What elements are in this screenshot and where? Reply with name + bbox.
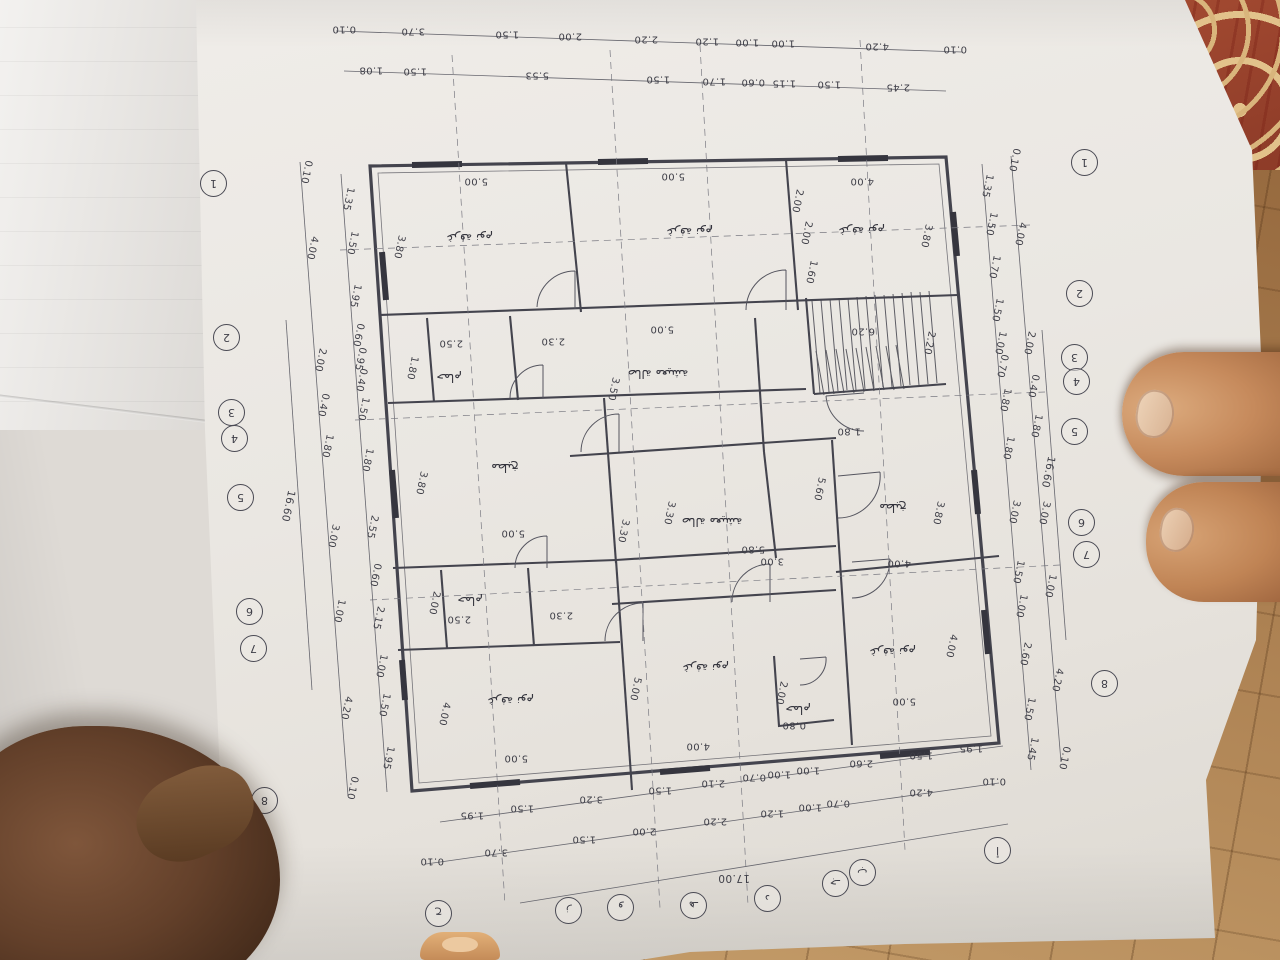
grid-bubble-label: هـ xyxy=(689,899,698,912)
chain-dimension-label: 1.35 xyxy=(341,186,357,212)
chain-dimension-label: 1.50 xyxy=(355,396,371,422)
chain-dimension-label: 1.20 xyxy=(760,807,784,818)
interior-dimension-label: 3.30 xyxy=(661,500,677,526)
grid-bubble-bottom: د xyxy=(754,885,781,912)
chain-dimension-label: 1.50 xyxy=(989,297,1005,323)
interior-dimension-label: 4.00 xyxy=(436,701,452,727)
chain-dimension-label: 5.53 xyxy=(525,69,549,80)
chain-dimension-label: 0.40 xyxy=(353,367,369,393)
room-name-label: مطبخ xyxy=(491,461,519,475)
grid-bubble-bottom: ب xyxy=(849,859,876,886)
interior-dimension-label: 4.00 xyxy=(887,558,911,569)
interior-dimension-label: 2.20 xyxy=(921,330,937,356)
chain-dimension-label: 0.70 xyxy=(742,772,766,783)
grid-bubble-bottom: جـ xyxy=(822,870,849,897)
chain-dimension-label: 0.10 xyxy=(1006,147,1022,173)
grid-bubble-right: 5 xyxy=(1061,418,1088,445)
interior-dimension-label: 3.80 xyxy=(413,470,429,496)
chain-dimension-label: 1.95 xyxy=(380,745,396,771)
grid-bubble-label: ب xyxy=(857,866,867,879)
chain-dimension-label: 0.10 xyxy=(943,43,967,54)
chain-dimension-label: 1.00 xyxy=(1042,573,1058,599)
grid-bubble-label: ح xyxy=(435,907,442,920)
chain-dimension-label: 1.00 xyxy=(735,37,759,48)
chain-dimension-label: 1.95 xyxy=(347,283,363,309)
grid-bubble-label: 4 xyxy=(231,432,238,445)
room-name-label: حمام xyxy=(785,703,810,717)
chain-dimension-label: 4.20 xyxy=(338,695,354,721)
interior-dimension-label: 1.60 xyxy=(803,259,819,285)
chain-dimension-label: 4.20 xyxy=(865,41,889,52)
grid-bubble-left: 4 xyxy=(221,425,248,452)
grid-bubble-bottom: هـ xyxy=(680,892,707,919)
chain-dimension-label: 1.50 xyxy=(344,230,360,256)
grid-bubble-label: 5 xyxy=(237,491,244,504)
chain-dimension-label: 1.00 xyxy=(798,802,822,813)
grid-bubble-label: 1 xyxy=(1081,156,1088,169)
chain-dimension-label: 2.15 xyxy=(370,605,386,631)
grid-bubble-right: 4 xyxy=(1063,368,1090,395)
chain-dimension-label: 2.10 xyxy=(701,777,725,788)
interior-dimension-label: 5.00 xyxy=(892,696,916,707)
interior-dimension-label: 5.00 xyxy=(661,171,685,182)
room-name-label: غرفة نوم xyxy=(683,661,729,675)
chain-dimension-label: 1.00 xyxy=(796,764,820,775)
interior-dimension-label: 1.80 xyxy=(404,355,420,381)
chain-dimension-label: 2.00 xyxy=(1021,330,1037,356)
chain-dimension-label: 3.70 xyxy=(401,26,425,37)
total-dimension-label: 17.00 xyxy=(718,872,750,884)
chain-dimension-label: 2.00 xyxy=(632,825,656,836)
chain-dimension-label: 1.50 xyxy=(495,29,519,40)
chain-dimension-label: 1.20 xyxy=(695,35,719,46)
grid-bubble-label: 8 xyxy=(1101,677,1108,690)
grid-bubble-label: 8 xyxy=(261,794,268,807)
room-name-label: مطبخ xyxy=(879,501,907,515)
chain-dimension-label: 1.50 xyxy=(1021,696,1037,722)
chain-dimension-label: 1.50 xyxy=(510,803,534,814)
grid-bubble-right: 2 xyxy=(1066,280,1093,307)
fingertip-bottom-edge xyxy=(420,932,500,960)
interior-dimension-label: 2.50 xyxy=(439,338,463,349)
grid-bubble-label: 2 xyxy=(1076,287,1083,300)
grid-bubble-label: 3 xyxy=(1071,351,1078,364)
grid-bubble-right: 3 xyxy=(1061,344,1088,371)
chain-dimension-label: 2.60 xyxy=(849,757,873,768)
chain-dimension-label: 1.80 xyxy=(1028,414,1044,440)
interior-dimension-label: 2.30 xyxy=(549,610,573,621)
holding-finger-upper xyxy=(1122,352,1280,476)
chain-dimension-label: 0.10 xyxy=(298,159,314,185)
interior-dimension-label: 3.50 xyxy=(605,376,621,402)
grid-bubble-label: و xyxy=(618,901,623,914)
grid-bubble-label: 3 xyxy=(228,406,235,419)
interior-dimension-label: 3.80 xyxy=(391,234,407,260)
grid-bubble-label: ز xyxy=(566,904,571,917)
interior-dimension-label: 0.80 xyxy=(782,720,806,731)
chain-dimension-label: 1.95 xyxy=(959,742,983,753)
chain-dimension-label: 1.50 xyxy=(572,834,596,845)
grid-bubble-right: 7 xyxy=(1073,541,1100,568)
interior-dimension-label: 5.00 xyxy=(501,528,525,539)
chain-dimension-label: 1.70 xyxy=(986,254,1002,280)
grid-bubble-left: 5 xyxy=(227,484,254,511)
interior-dimension-label: 3.30 xyxy=(615,518,631,544)
chain-dimension-label: 3.00 xyxy=(1036,501,1052,527)
chain-dimension-label: 3.00 xyxy=(1006,499,1022,525)
fingernail-lower xyxy=(1156,505,1197,554)
chain-dimension-label: 0.60 xyxy=(741,76,765,87)
chain-dimension-label: 0.60 xyxy=(350,322,366,348)
holding-finger-lower xyxy=(1146,482,1280,602)
chain-dimension-label: 0.10 xyxy=(332,24,356,35)
chain-dimension-label: 3.20 xyxy=(579,794,603,805)
interior-dimension-label: 4.00 xyxy=(686,741,710,752)
room-name-label: صالة معيشة xyxy=(682,515,743,529)
chain-dimension-label: 2.20 xyxy=(634,33,658,44)
chain-dimension-label: 1.50 xyxy=(817,79,841,90)
grid-bubble-label: 1 xyxy=(210,177,217,190)
interior-dimension-label: 5.80 xyxy=(741,544,765,555)
room-name-label: غرفة نوم xyxy=(447,231,493,245)
chain-dimension-label: 2.20 xyxy=(703,815,727,826)
chain-dimension-label: 1.35 xyxy=(980,173,996,199)
chain-dimension-label: 1.50 xyxy=(1010,560,1026,586)
interior-dimension-label: 5.60 xyxy=(811,476,827,502)
interior-dimension-label: 2.50 xyxy=(447,614,471,625)
grid-bubble-right: 8 xyxy=(1091,670,1118,697)
total-dimension-label: 16.60 xyxy=(279,489,297,523)
interior-dimension-label: 2.00 xyxy=(789,188,805,214)
chain-dimension-label: 1.50 xyxy=(983,211,999,237)
chain-dimension-label: 3.00 xyxy=(325,523,341,549)
grid-bubble-label: 7 xyxy=(1083,548,1090,561)
interior-dimension-label: 5.00 xyxy=(464,176,488,187)
grid-bubble-right: 6 xyxy=(1068,509,1095,536)
interior-dimension-label: 5.00 xyxy=(504,753,528,764)
grid-bubble-left: 1 xyxy=(200,170,227,197)
chain-dimension-label: 1.00 xyxy=(771,38,795,49)
chain-dimension-label: 3.70 xyxy=(484,846,508,857)
chain-dimension-label: 1.80 xyxy=(997,387,1013,413)
grid-bubble-label: 5 xyxy=(1071,425,1078,438)
grid-bubble-bottom: و xyxy=(607,894,634,921)
interior-dimension-label: 4.00 xyxy=(943,633,959,659)
interior-dimension-label: 4.00 xyxy=(850,176,874,187)
chain-dimension-label: 1.80 xyxy=(359,447,375,473)
chain-dimension-label: 1.80 xyxy=(1001,435,1017,461)
chain-dimension-label: 0.40 xyxy=(316,392,332,418)
grid-bubble-left: 3 xyxy=(218,399,245,426)
chain-dimension-label: 0.10 xyxy=(420,855,444,866)
chain-dimension-label: 1.45 xyxy=(1025,736,1041,762)
room-name-label: صالة معيشة xyxy=(628,367,689,381)
grid-bubble-label: 7 xyxy=(250,642,257,655)
chain-dimension-label: 4.00 xyxy=(1012,221,1028,247)
chain-dimension-label: 1.00 xyxy=(1013,593,1029,619)
chain-dimension-label: 4.20 xyxy=(1049,667,1065,693)
chain-dimension-label: 1.50 xyxy=(646,73,670,84)
grid-bubble-label: أ xyxy=(996,844,999,857)
room-name-label: غرفة نوم xyxy=(870,645,916,659)
interior-dimension-label: 6.20 xyxy=(851,326,875,337)
chain-dimension-label: 1.00 xyxy=(331,598,347,624)
grid-bubble-left: 7 xyxy=(240,635,267,662)
room-name-label: غرفة نوم xyxy=(667,225,713,239)
room-name-label: غرفة نوم xyxy=(488,694,534,708)
total-dimension-label: 16.60 xyxy=(1039,455,1057,489)
room-name-label: حمام xyxy=(436,371,461,385)
chain-dimension-label: 2.45 xyxy=(886,81,910,92)
room-name-label: حمام xyxy=(457,594,482,608)
chain-dimension-label: 0.10 xyxy=(1056,745,1072,771)
grid-bubble-left: 6 xyxy=(236,598,263,625)
chain-dimension-label: 0.10 xyxy=(344,775,360,801)
grid-bubble-bottom: ز xyxy=(555,897,582,924)
chain-dimension-label: 1.00 xyxy=(767,768,791,779)
chain-dimension-label: 0.40 xyxy=(1025,374,1041,400)
chain-dimension-label: 4.20 xyxy=(909,786,933,797)
interior-dimension-label: 1.80 xyxy=(837,426,861,437)
grid-bubble-bottom: ح xyxy=(425,900,452,927)
chain-dimension-label: 1.95 xyxy=(460,810,484,821)
chain-dimension-label: 2.55 xyxy=(364,514,380,540)
fingernail-bottom-edge xyxy=(442,937,478,952)
interior-dimension-label: 2.00 xyxy=(426,590,442,616)
chain-dimension-label: 1.50 xyxy=(909,749,933,760)
chain-dimension-label: 1.80 xyxy=(319,434,335,460)
grid-bubble-label: د xyxy=(765,892,770,905)
grid-bubble-right: 1 xyxy=(1071,149,1098,176)
grid-bubble-label: 6 xyxy=(1078,516,1085,529)
photo-canvas: 5.003.805.005.004.003.802.002.001.606.20… xyxy=(0,0,1280,960)
interior-dimension-label: 2.00 xyxy=(773,680,789,706)
chain-dimension-label: 0.70 xyxy=(826,798,850,809)
interior-dimension-label: 3.80 xyxy=(930,500,946,526)
grid-bubble-label: 4 xyxy=(1073,375,1080,388)
chain-dimension-label: 4.00 xyxy=(304,236,320,262)
chain-dimension-label: 1.70 xyxy=(702,75,726,86)
grid-bubble-label: 6 xyxy=(246,605,253,618)
grid-bubble-label: 2 xyxy=(223,331,230,344)
chain-dimension-label: 1.15 xyxy=(772,77,796,88)
interior-dimension-label: 5.00 xyxy=(627,676,643,702)
interior-dimension-label: 5.00 xyxy=(650,324,674,335)
chain-dimension-label: 0.60 xyxy=(367,563,383,589)
interior-dimension-label: 3.00 xyxy=(760,556,784,567)
interior-dimension-label: 2.30 xyxy=(541,336,565,347)
chain-dimension-label: 1.50 xyxy=(648,784,672,795)
chain-dimension-label: 2.60 xyxy=(1017,641,1033,667)
chain-dimension-label: 1.08 xyxy=(359,64,383,75)
chain-dimension-label: 2.00 xyxy=(312,348,328,374)
chain-dimension-label: 1.50 xyxy=(403,66,427,77)
fingernail-upper xyxy=(1133,388,1177,441)
interior-dimension-label: 2.00 xyxy=(798,220,814,246)
grid-bubble-label: جـ xyxy=(830,877,840,890)
grid-bubble-bottom: أ xyxy=(984,837,1011,864)
grid-bubble-left: 2 xyxy=(213,324,240,351)
chain-dimension-label: 2.00 xyxy=(558,31,582,42)
interior-dimension-label: 3.80 xyxy=(918,223,934,249)
chain-dimension-label: 1.50 xyxy=(376,692,392,718)
chain-dimension-label: 0.10 xyxy=(982,776,1006,787)
chain-dimension-label: 1.00 xyxy=(374,653,390,679)
chain-dimension-label: 0.70 xyxy=(994,353,1010,379)
room-name-label: غرفة نوم xyxy=(839,224,885,238)
